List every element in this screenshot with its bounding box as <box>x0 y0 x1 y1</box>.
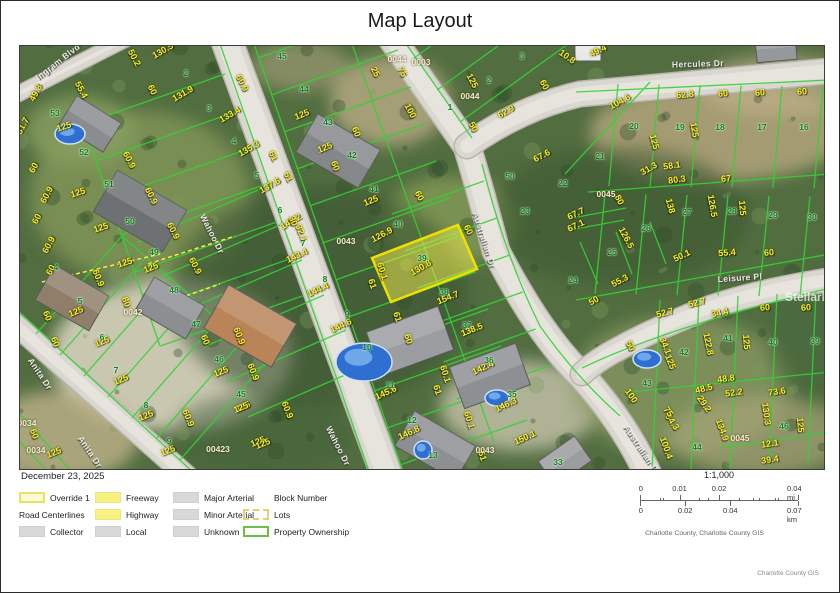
scale-box: 1:1,000 00.010.020.04 mi00.020.040.07 km… <box>631 470 816 537</box>
lot-number: 52 <box>79 148 88 157</box>
legend-label: Local <box>126 527 146 537</box>
lot-number: 23 <box>520 207 529 216</box>
legend-row: Road CenterlinesHighwayMinor ArterialLot… <box>19 506 389 523</box>
dimension-label: 61 <box>391 311 403 323</box>
data-attribution: Charlotte County, Charlotte County GIS <box>645 530 816 537</box>
dimension-label: 10.8 <box>557 48 577 65</box>
lot-number: 9 <box>167 437 172 446</box>
street-label: Anita Dr <box>76 435 103 470</box>
scale-bar: 00.010.020.04 mi00.020.040.07 km <box>640 483 798 513</box>
lot-number: 41 <box>369 185 378 194</box>
legend-item: Unknown <box>173 526 243 537</box>
legend: December 23, 2025 Override 1FreewayMajor… <box>19 469 389 540</box>
dimension-label: 60 <box>350 126 362 139</box>
dimension-label: 125 <box>648 134 661 151</box>
street-label: Leisure Pl <box>717 272 762 284</box>
dimension-label: 61 <box>267 149 280 162</box>
dimension-label: 100 <box>623 387 639 404</box>
legend-swatch-gray <box>95 526 121 537</box>
lot-number: 28 <box>727 207 736 216</box>
block-number: 0034 <box>27 446 46 455</box>
lot-number: 50 <box>505 172 514 181</box>
lot-number: 6 <box>278 206 283 215</box>
street-label: Australian Dr <box>622 423 662 470</box>
block-number: 0042 <box>124 308 143 317</box>
scale-tick-minor <box>699 498 700 501</box>
dimension-label: 60 <box>41 310 53 323</box>
lot-number: 20 <box>629 122 638 131</box>
scale-tick-minor <box>778 498 779 501</box>
legend-item: Block Number <box>243 492 413 503</box>
dimension-label: 125 <box>316 141 333 155</box>
block-number: 0045 <box>731 434 750 443</box>
lot-number: 5 <box>78 297 83 306</box>
lot-number: 46 <box>214 355 223 364</box>
legend-item: Property Ownership <box>243 526 413 537</box>
street-label: Hercules Dr <box>672 59 724 69</box>
legend-label: Highway <box>126 510 159 520</box>
block-number: 0044 <box>461 92 480 101</box>
lot-number: 51 <box>104 180 113 189</box>
dimension-label: 100 <box>402 102 417 119</box>
dimension-label: 60 <box>718 89 729 99</box>
map-layout-page: Map Layout 49.855.431.71256060.91256060.… <box>0 0 840 593</box>
lot-number: 16 <box>799 123 808 132</box>
lot-number: 30 <box>807 213 816 222</box>
dimension-label: 125 <box>464 72 479 89</box>
dimension-label: 60.9 <box>234 73 250 93</box>
lot-number: 46 <box>779 422 788 431</box>
legend-item: Road Centerlines <box>19 510 95 520</box>
dimension-label: 61 <box>282 170 295 183</box>
lot-number: 33 <box>553 458 562 467</box>
scale-tick-label: 0 <box>639 484 643 493</box>
lot-number: 25 <box>607 248 616 257</box>
scale-tick-minor <box>708 498 709 501</box>
lot-number: 44 <box>299 85 308 94</box>
lot-number: 17 <box>757 123 766 132</box>
lot-number: 38 <box>439 288 448 297</box>
dimension-label: 125 <box>293 108 310 122</box>
dimension-label: 55.3 <box>610 273 630 289</box>
dimension-label: 143.4 <box>285 247 309 265</box>
dimension-label: 126.5 <box>706 194 719 218</box>
dimension-label: 60 <box>797 87 808 97</box>
dimension-label: 60.1 <box>462 410 476 429</box>
lot-number: 19 <box>675 123 684 132</box>
dimension-label: 135.3 <box>237 139 261 158</box>
scale-tick-label: 0.02 <box>712 484 727 493</box>
dimension-label: 60.9 <box>143 186 159 206</box>
dimension-label: 126.5 <box>617 226 636 250</box>
dimension-label: 60 <box>402 333 414 345</box>
dimension-label: 50 <box>624 339 637 352</box>
map-date: December 23, 2025 <box>21 471 389 482</box>
dimension-label: 125 <box>116 256 133 269</box>
block-number: 00423 <box>206 445 230 454</box>
scale-tick-label: 0 <box>639 506 643 515</box>
dimension-label: 60 <box>31 212 44 225</box>
dimension-label: 146.8 <box>397 424 421 442</box>
dimension-label: 134.9 <box>714 418 730 442</box>
block-number: 0003 <box>412 58 431 67</box>
dimension-label: 60.1 <box>375 261 389 280</box>
lot-number: 3 <box>207 104 212 113</box>
legend-swatch-gray <box>173 526 199 537</box>
footer-credit: Charlotte County GIS <box>757 570 819 577</box>
dimension-label: 125 <box>137 409 154 423</box>
dimension-label: 125 <box>688 122 699 138</box>
lot-number: 11 <box>386 381 395 390</box>
legend-label: Property Ownership <box>274 527 349 537</box>
dimension-label: 49.4 <box>588 45 608 59</box>
dimension-label: 25 <box>369 65 382 78</box>
dimension-label: 50 <box>587 295 600 308</box>
dimension-label: 52.7 <box>655 306 674 319</box>
legend-rows: Override 1FreewayMajor ArterialBlock Num… <box>19 489 389 540</box>
map-canvas: 49.855.431.71256060.91256060.91256012560… <box>19 45 825 470</box>
legend-swatch-yellow <box>95 509 121 520</box>
dimension-label: 75 <box>396 65 409 78</box>
lot-number: 48 <box>169 286 178 295</box>
dimension-label: 125 <box>212 365 229 379</box>
legend-swatch-dashed <box>243 509 269 520</box>
dimension-label: 137.6 <box>258 176 282 195</box>
page-title: Map Layout <box>1 10 839 33</box>
dimension-label: 31.7 <box>19 116 31 136</box>
dimension-label: 60 <box>329 160 341 173</box>
scale-tick-mi <box>640 495 641 500</box>
legend-label: Unknown <box>204 527 239 537</box>
lot-number: 21 <box>595 152 604 161</box>
legend-label: Override 1 <box>50 493 90 503</box>
scale-tick-mi <box>680 495 681 500</box>
dimension-label: 48.8 <box>717 373 736 384</box>
dimension-label: 60.9 <box>39 185 55 205</box>
legend-label: Block Number <box>274 493 327 503</box>
lot-number: 22 <box>558 179 567 188</box>
legend-label: Freeway <box>126 493 159 503</box>
lot-number: 39 <box>417 254 426 263</box>
scale-tick-label: 0.04 mi <box>787 484 802 502</box>
street-label: Wahoo Dr <box>324 425 351 467</box>
legend-item: Major Arterial <box>173 492 243 503</box>
dimension-label: 133.4 <box>218 105 242 124</box>
dimension-label: 60 <box>760 303 771 313</box>
dimension-label: 50.2 <box>126 48 142 68</box>
legend-row: CollectorLocalUnknownProperty Ownership <box>19 523 389 540</box>
dimension-label: 55.4 <box>73 80 89 100</box>
lot-number: 27 <box>682 208 691 217</box>
dimension-label: 62.9 <box>496 104 516 121</box>
street-label: Ingram Blvd <box>34 45 81 82</box>
dimension-label: 125 <box>112 373 129 387</box>
dimension-label: 125 <box>45 446 62 460</box>
lot-number: 35 <box>507 390 516 399</box>
dimension-label: 125 <box>663 353 677 370</box>
dimension-label: 125 <box>795 417 805 433</box>
legend-swatch-gray <box>173 492 199 503</box>
dimension-label: 61 <box>366 278 378 290</box>
legend-item: Collector <box>19 526 95 537</box>
dimension-label: 67 <box>721 174 732 184</box>
lot-number: 7 <box>114 366 119 375</box>
street-label: Anita Dr <box>26 357 53 392</box>
legend-item: Override 1 <box>19 492 95 503</box>
scale-tick-minor <box>775 498 776 501</box>
lot-number: 7 <box>301 239 306 248</box>
dimension-label: 60 <box>199 334 211 347</box>
scale-tick-label: 0.04 <box>723 506 738 515</box>
lot-number: 8 <box>323 275 328 284</box>
lot-number: 50 <box>125 217 134 226</box>
scale-bar-line <box>640 500 798 501</box>
lot-number: 45 <box>277 52 286 61</box>
dimension-label: 144.6 <box>329 317 353 335</box>
lot-number: 26 <box>641 224 650 233</box>
dimension-label: 12.1 <box>761 438 780 449</box>
lot-number: 5 <box>255 171 260 180</box>
dimension-label: 60 <box>538 78 551 91</box>
block-number: 0043 <box>476 446 495 455</box>
dimension-label: 126.9 <box>370 226 394 245</box>
dimension-label: 144.4 <box>306 281 330 299</box>
dimension-label: 125 <box>92 221 109 234</box>
stellar-mls-watermark: StellarMLS <box>785 291 825 303</box>
dimension-label: 73.6 <box>768 386 787 397</box>
scale-ratio: 1:1,000 <box>639 470 799 480</box>
dimension-label: 58.1 <box>663 160 682 171</box>
lot-number: 12 <box>407 416 416 425</box>
dimension-label: 125 <box>69 186 86 199</box>
block-number: 0044 <box>388 55 407 64</box>
dimension-label: 100.4 <box>658 436 674 460</box>
scale-tick-minor <box>663 498 664 501</box>
legend-swatch-yellow <box>95 492 121 503</box>
lot-number: 37 <box>462 321 471 330</box>
lot-number: 9 <box>345 310 350 319</box>
dimension-label: 49.8 <box>28 83 44 103</box>
dimension-label: 62.8 <box>676 90 694 100</box>
legend-label: Road Centerlines <box>19 510 85 520</box>
lot-number: 41 <box>723 334 732 343</box>
dimension-label: 60 <box>413 189 426 202</box>
dimension-label: 60.9 <box>41 235 57 255</box>
lot-number: 29 <box>768 211 777 220</box>
dimension-label: 60 <box>28 161 41 174</box>
legend-item: Freeway <box>95 492 173 503</box>
scale-tick-minor <box>660 498 661 501</box>
lot-number: 4 <box>54 263 59 272</box>
scale-tick-label: 0.01 <box>672 484 687 493</box>
dimension-label: 67.6 <box>532 148 552 164</box>
dimension-label: 60.9 <box>232 326 247 346</box>
dimension-label: 60 <box>801 303 812 313</box>
dimension-label: 60 <box>764 248 775 258</box>
dimension-label: 60.1 <box>438 364 452 383</box>
dimension-label: 31.3 <box>639 161 659 178</box>
legend-swatch-green-outline <box>243 526 269 537</box>
legend-row: Override 1FreewayMajor ArterialBlock Num… <box>19 489 389 506</box>
lot-number: 18 <box>715 123 724 132</box>
legend-label: Collector <box>50 527 84 537</box>
dimension-label: 60 <box>755 88 766 98</box>
dimension-label: 131.9 <box>171 84 195 103</box>
dimension-label: 60.9 <box>181 408 196 428</box>
legend-item: Lots <box>243 509 413 520</box>
scale-tick-minor <box>753 498 754 501</box>
scale-tick-label: 0.07 km <box>787 506 802 524</box>
street-label: Australian Dr <box>471 211 497 269</box>
dimension-label: 50.1 <box>672 248 692 264</box>
scale-tick-minor <box>739 498 740 501</box>
lot-number: 10 <box>362 343 371 352</box>
street-label: Wahoo Dr <box>198 213 225 255</box>
block-number: 0045 <box>597 190 616 199</box>
lot-number: 6 <box>100 333 105 342</box>
dimension-label: 61 <box>431 384 443 396</box>
lot-number: 8 <box>144 401 149 410</box>
lot-number: 45 <box>236 390 245 399</box>
lot-number: 4 <box>232 137 237 146</box>
dimension-label: 146.3 <box>494 396 518 414</box>
dimension-label: 60 <box>462 223 475 236</box>
legend-label: Lots <box>274 510 290 520</box>
lot-number: 53 <box>50 109 59 118</box>
dimension-label: 52.2 <box>725 387 744 398</box>
lot-number: 44 <box>692 443 701 452</box>
lot-number: 42 <box>679 348 688 357</box>
dimension-label: 60.9 <box>121 150 137 170</box>
lot-number: 43 <box>323 118 332 127</box>
dimension-label: 125 <box>737 200 747 216</box>
dimension-label: 122.8 <box>701 332 714 356</box>
lot-number: 2 <box>184 69 189 78</box>
dimension-label: 125 <box>741 334 751 350</box>
dimension-label: 80.3 <box>668 174 687 185</box>
dimension-label: 125 <box>142 261 159 275</box>
dimension-label: 60.9 <box>187 256 203 276</box>
lot-number: 39 <box>810 337 819 346</box>
dimension-label: 130.3 <box>760 402 772 426</box>
legend-item: Local <box>95 526 173 537</box>
lot-number: 43 <box>642 379 651 388</box>
dimension-label: 125 <box>159 444 176 458</box>
dimension-label: 29.2 <box>695 394 712 414</box>
dimension-label: 60.9 <box>91 268 106 288</box>
dimension-label: 60 <box>28 428 40 441</box>
dimension-label: 60.9 <box>165 221 181 241</box>
lot-number: 49 <box>149 248 158 257</box>
dimension-label: 55.4 <box>718 248 736 258</box>
legend-item: Minor Arterial <box>173 509 243 520</box>
dimension-label: 125 <box>362 194 379 208</box>
dimension-label: 60.9 <box>280 400 295 420</box>
dimension-label: 39.4 <box>761 454 780 465</box>
dimension-label: 60.9 <box>246 362 261 382</box>
dimension-label: 50 <box>467 120 480 133</box>
legend-item: Highway <box>95 509 173 520</box>
scale-tick-label: 0.02 <box>678 506 693 515</box>
block-number: 0034 <box>19 419 36 428</box>
dimension-label: 60 <box>146 83 159 96</box>
block-number: 0043 <box>337 237 356 246</box>
scale-tick-minor <box>759 498 760 501</box>
map-label-layer: 49.855.431.71256060.91256060.91256012560… <box>20 46 824 469</box>
legend-swatch-override <box>19 492 45 503</box>
dimension-label: 104.6 <box>608 93 632 112</box>
dimension-label: 138 <box>664 198 677 215</box>
dimension-label: 125 <box>55 120 72 133</box>
dimension-label: 150.1 <box>513 429 537 447</box>
lot-number: 47 <box>191 320 200 329</box>
dimension-label: 52.7 <box>687 296 706 309</box>
lot-number: 3 <box>520 52 525 61</box>
lot-number: 1 <box>448 103 453 112</box>
legend-swatch-gray <box>19 526 45 537</box>
lot-number: 42 <box>347 151 356 160</box>
lot-number: 36 <box>484 356 493 365</box>
scale-tick-mi <box>719 495 720 500</box>
lot-number: 24 <box>568 276 577 285</box>
legend-swatch-gray <box>173 509 199 520</box>
lot-number: 40 <box>393 220 402 229</box>
dimension-label: 60 <box>49 336 61 349</box>
dimension-label: 130.5 <box>151 45 175 61</box>
dimension-label: 125 <box>67 305 84 319</box>
lot-number: 2 <box>487 76 492 85</box>
lot-number: 40 <box>768 338 777 347</box>
lot-number: 13 <box>428 451 437 460</box>
dimension-label: 34.4 <box>710 307 729 319</box>
